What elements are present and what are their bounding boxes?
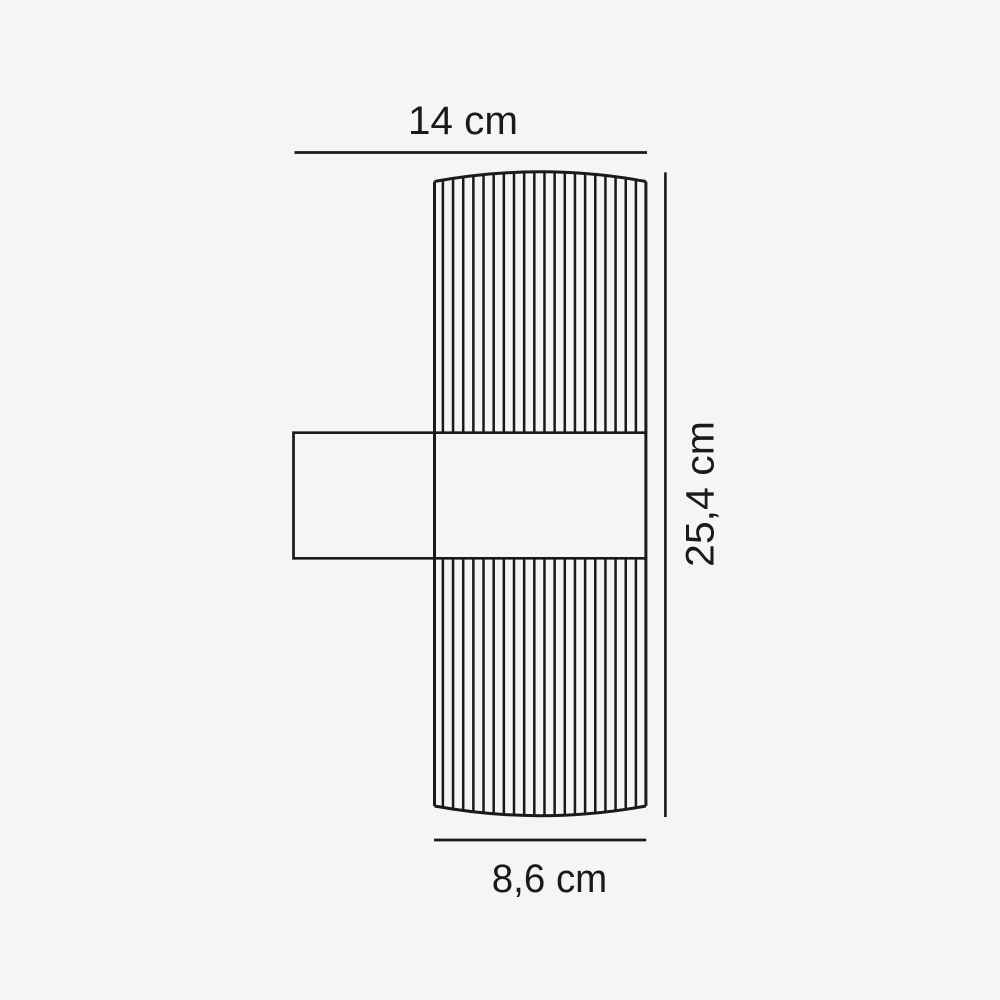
- svg-text:8,6 cm: 8,6 cm: [492, 857, 608, 901]
- svg-text:14 cm: 14 cm: [408, 99, 518, 143]
- svg-text:25,4 cm: 25,4 cm: [679, 421, 723, 567]
